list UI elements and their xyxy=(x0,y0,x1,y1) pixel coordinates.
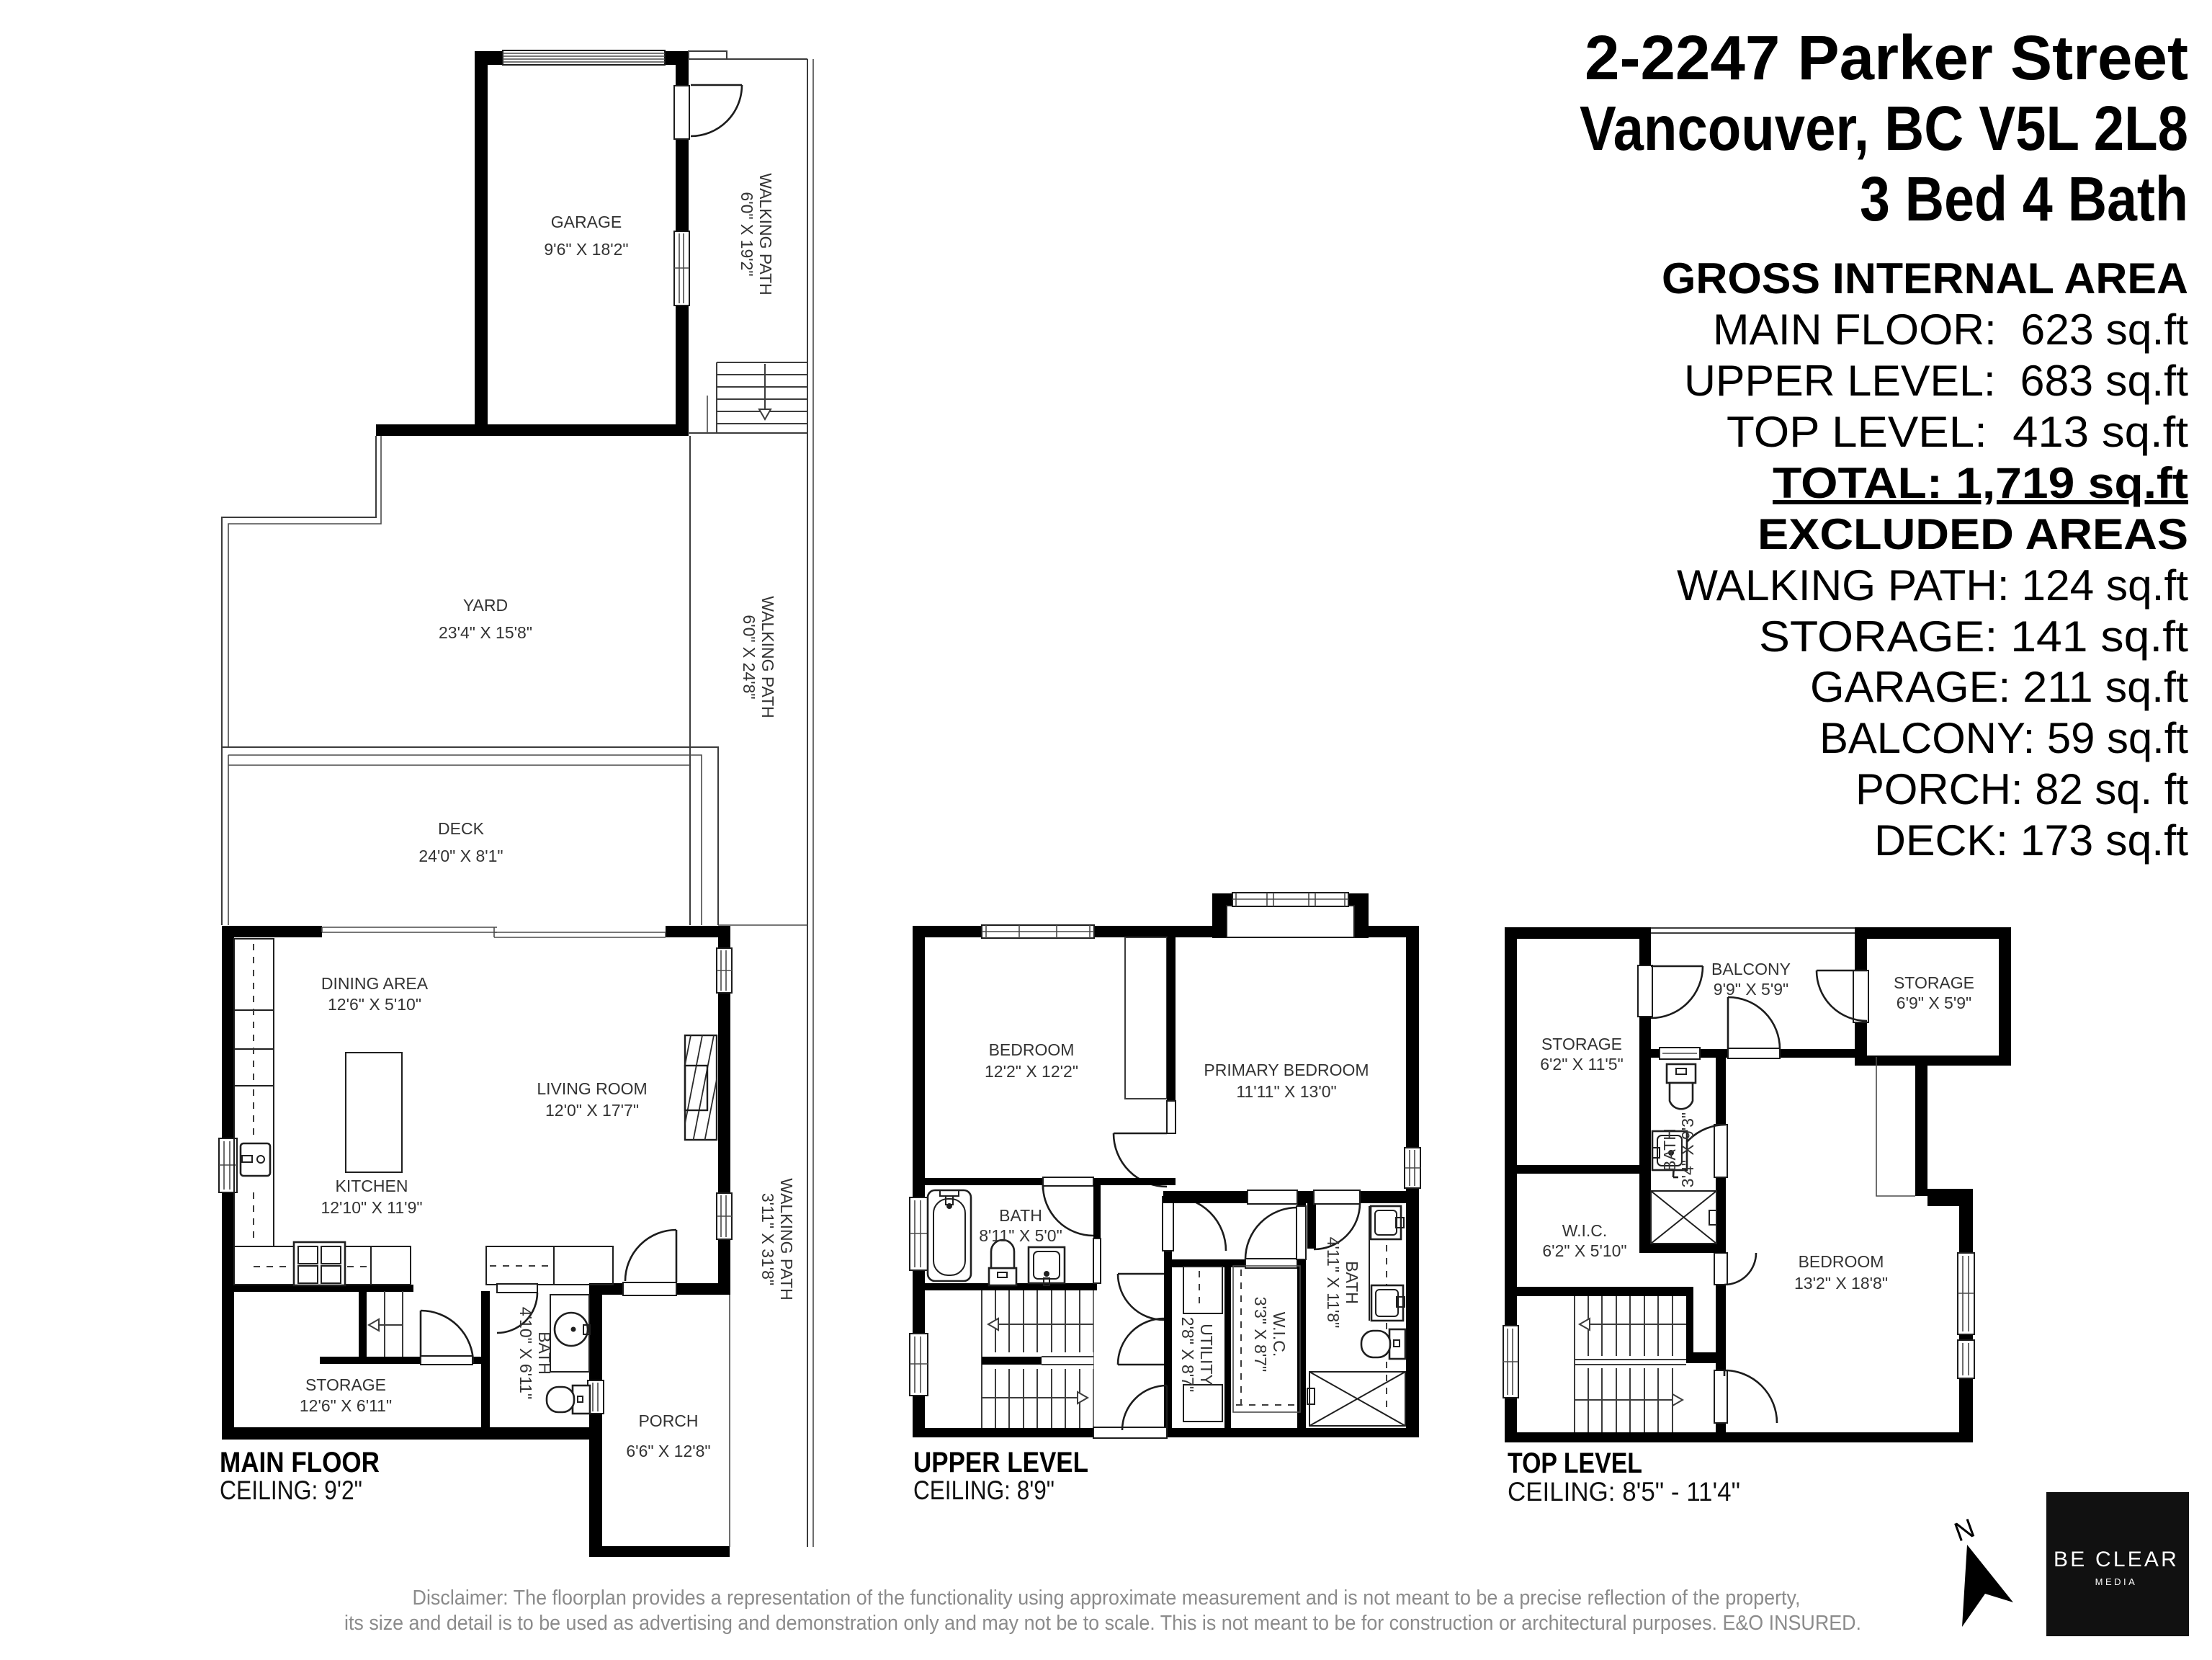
svg-text:GARAGE: 211 sq.ft: GARAGE: 211 sq.ft xyxy=(1810,663,2188,711)
svg-text:KITCHEN: KITCHEN xyxy=(336,1177,408,1195)
svg-text:Vancouver, BC V5L 2L8: Vancouver, BC V5L 2L8 xyxy=(1580,94,2188,164)
svg-text:13'2" X 18'8": 13'2" X 18'8" xyxy=(1794,1274,1888,1293)
svg-text:GROSS INTERNAL AREA: GROSS INTERNAL AREA xyxy=(1662,254,2188,303)
svg-text:STORAGE: STORAGE xyxy=(1541,1035,1622,1053)
svg-text:24'0" X 8'1": 24'0" X 8'1" xyxy=(418,847,503,865)
svg-text:LIVING ROOM: LIVING ROOM xyxy=(537,1079,647,1098)
svg-text:23'4" X 15'8": 23'4" X 15'8" xyxy=(439,623,532,642)
svg-text:9'9" X 5'9": 9'9" X 5'9" xyxy=(1714,980,1788,999)
svg-text:6'6" X 12'8": 6'6" X 12'8" xyxy=(626,1442,710,1460)
svg-text:Disclaimer: The floorplan prov: Disclaimer: The floorplan provides a rep… xyxy=(413,1587,1801,1610)
svg-text:CEILING: 9'2": CEILING: 9'2" xyxy=(220,1476,362,1505)
svg-text:WALKING PATH: WALKING PATH xyxy=(777,1178,796,1300)
svg-text:its size and detail is to be u: its size and detail is to be used as adv… xyxy=(344,1612,1861,1635)
svg-text:UPPER LEVEL: 683 sq.ft: UPPER LEVEL: 683 sq.ft xyxy=(1684,357,2188,405)
svg-text:12'6" X 6'11": 12'6" X 6'11" xyxy=(300,1396,392,1415)
svg-text:2-2247 Parker Street: 2-2247 Parker Street xyxy=(1585,23,2188,93)
svg-text:EXCLUDED AREAS: EXCLUDED AREAS xyxy=(1757,510,2188,558)
svg-text:DINING AREA: DINING AREA xyxy=(321,974,429,993)
svg-text:TOP LEVEL: 413 sq.ft: TOP LEVEL: 413 sq.ft xyxy=(1727,408,2188,456)
svg-text:W.I.C.: W.I.C. xyxy=(1270,1312,1289,1357)
svg-text:8'11" X 5'0": 8'11" X 5'0" xyxy=(979,1226,1062,1245)
svg-text:6'2" X 11'5": 6'2" X 11'5" xyxy=(1540,1055,1623,1074)
svg-text:MAIN FLOOR: MAIN FLOOR xyxy=(220,1447,380,1478)
svg-text:GARAGE: GARAGE xyxy=(551,213,622,231)
svg-text:3'11" X 31'8": 3'11" X 31'8" xyxy=(758,1193,777,1285)
svg-text:6'0" X 24'8": 6'0" X 24'8" xyxy=(740,615,758,699)
svg-text:4'11" X 11'8": 4'11" X 11'8" xyxy=(1324,1237,1343,1329)
svg-text:BATH: BATH xyxy=(535,1331,554,1375)
svg-text:BALCONY: BALCONY xyxy=(1711,960,1791,978)
svg-text:MAIN FLOOR: 623 sq.ft: MAIN FLOOR: 623 sq.ft xyxy=(1713,305,2188,354)
svg-text:TOP LEVEL: TOP LEVEL xyxy=(1508,1447,1642,1479)
svg-text:BATH: BATH xyxy=(1660,1128,1679,1172)
svg-text:BEDROOM: BEDROOM xyxy=(1799,1252,1884,1271)
svg-text:W.I.C.: W.I.C. xyxy=(1562,1221,1608,1240)
svg-text:CEILING: 8'9": CEILING: 8'9" xyxy=(913,1476,1054,1505)
svg-text:4'10" X 6'11": 4'10" X 6'11" xyxy=(516,1307,535,1399)
svg-text:CEILING: 8'5" - 11'4": CEILING: 8'5" - 11'4" xyxy=(1508,1477,1740,1507)
svg-text:PORCH: 82 sq. ft: PORCH: 82 sq. ft xyxy=(1855,765,2188,813)
svg-text:12'2" X 12'2": 12'2" X 12'2" xyxy=(985,1062,1078,1081)
svg-text:6'2" X 5'10": 6'2" X 5'10" xyxy=(1542,1241,1626,1260)
svg-text:YARD: YARD xyxy=(463,596,508,615)
svg-text:WALKING PATH: 124 sq.ft: WALKING PATH: 124 sq.ft xyxy=(1677,561,2188,610)
svg-text:UTILITY: UTILITY xyxy=(1197,1324,1216,1385)
svg-text:3 Bed 4 Bath: 3 Bed 4 Bath xyxy=(1860,164,2188,234)
svg-text:BATH: BATH xyxy=(1343,1261,1361,1304)
svg-text:DECK: 173 sq.ft: DECK: 173 sq.ft xyxy=(1874,816,2188,865)
svg-text:PRIMARY BEDROOM: PRIMARY BEDROOM xyxy=(1204,1061,1369,1079)
svg-text:BALCONY: 59 sq.ft: BALCONY: 59 sq.ft xyxy=(1819,714,2188,762)
svg-text:3'3" X 8'7": 3'3" X 8'7" xyxy=(1251,1297,1270,1372)
svg-text:STORAGE: STORAGE xyxy=(1894,973,1974,992)
svg-text:WALKING PATH: WALKING PATH xyxy=(758,596,777,718)
svg-text:WALKING PATH: WALKING PATH xyxy=(756,173,775,295)
svg-text:BEDROOM: BEDROOM xyxy=(989,1040,1075,1059)
svg-text:STORAGE: STORAGE xyxy=(305,1375,386,1394)
svg-text:9'6" X 18'2": 9'6" X 18'2" xyxy=(544,240,628,259)
svg-text:3'4" X 9'3": 3'4" X 9'3" xyxy=(1678,1112,1697,1187)
svg-text:6'9" X 5'9": 6'9" X 5'9" xyxy=(1897,994,1971,1012)
svg-text:12'6" X 5'10": 12'6" X 5'10" xyxy=(328,995,421,1014)
svg-text:BE CLEAR: BE CLEAR xyxy=(2054,1548,2179,1571)
svg-text:12'0" X 17'7": 12'0" X 17'7" xyxy=(545,1101,639,1120)
svg-text:12'10" X 11'9": 12'10" X 11'9" xyxy=(321,1198,422,1217)
svg-text:UPPER LEVEL: UPPER LEVEL xyxy=(913,1447,1088,1478)
svg-text:11'11" X 13'0": 11'11" X 13'0" xyxy=(1236,1082,1336,1101)
svg-text:DECK: DECK xyxy=(438,819,485,838)
svg-text:PORCH: PORCH xyxy=(638,1411,698,1430)
svg-text:2'8" X 8'7": 2'8" X 8'7" xyxy=(1178,1317,1197,1392)
svg-text:6'0" X 19'2": 6'0" X 19'2" xyxy=(738,192,756,276)
svg-text:MEDIA: MEDIA xyxy=(2095,1576,2138,1587)
svg-text:STORAGE: 141 sq.ft: STORAGE: 141 sq.ft xyxy=(1759,612,2188,661)
svg-text:TOTAL: 1,719 sq.ft: TOTAL: 1,719 sq.ft xyxy=(1773,459,2188,507)
svg-text:BATH: BATH xyxy=(999,1206,1042,1225)
